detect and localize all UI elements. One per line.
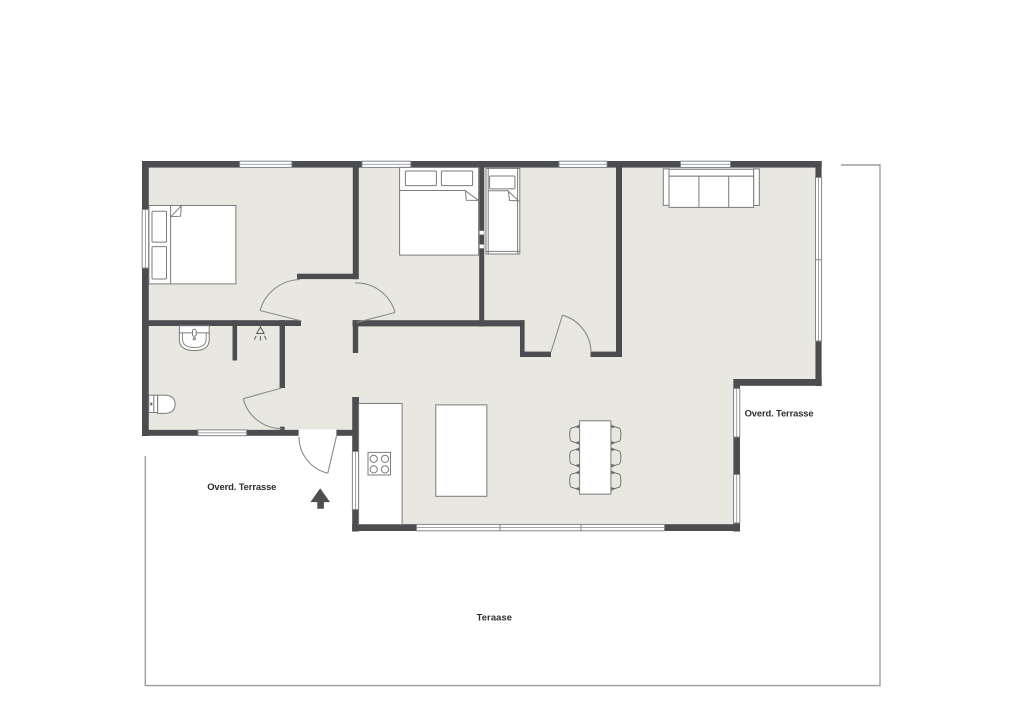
svg-text:Teraase: Teraase (477, 612, 512, 623)
svg-text:Overd. Terrasse: Overd. Terrasse (207, 481, 276, 492)
svg-text:Overd. Terrasse: Overd. Terrasse (745, 407, 814, 418)
